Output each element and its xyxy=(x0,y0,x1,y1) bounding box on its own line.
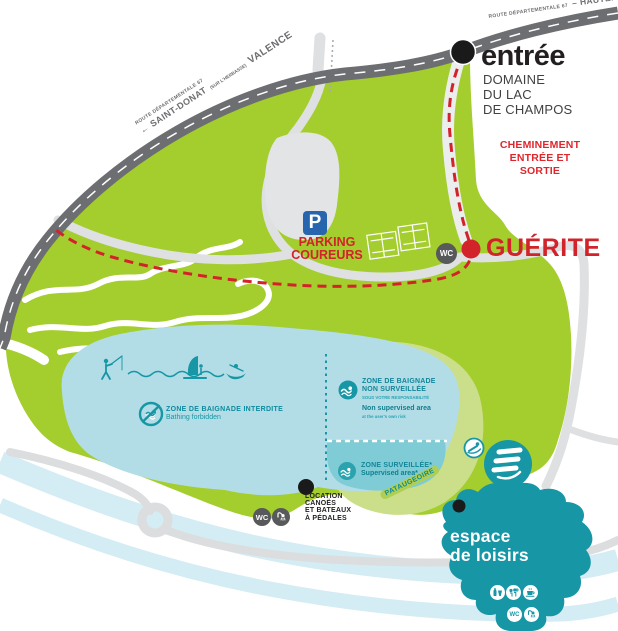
unsupervised-line-1: ZONE DE BAIGNADE xyxy=(362,378,436,386)
wc-icon: WC xyxy=(436,243,457,264)
rental-line-2: CANOËS xyxy=(305,500,351,507)
unsupervised-line-4: Non supervised area xyxy=(362,405,436,413)
forbidden-zone-subtitle: Bathing forbidden xyxy=(166,414,221,421)
no-swimming-icon xyxy=(140,403,162,425)
leisure-dot xyxy=(453,500,466,513)
slide-person-icon xyxy=(465,439,484,458)
entrance-line-1: DOMAINE xyxy=(483,72,572,87)
steps-marks xyxy=(12,423,38,452)
playground-glyph xyxy=(508,587,519,598)
shower-icon xyxy=(524,607,539,622)
swimmer-icon-unsupervised xyxy=(339,381,358,400)
drinks-icon xyxy=(490,585,505,600)
shower-glyph xyxy=(526,609,537,620)
wc-icon: WC xyxy=(253,508,271,526)
parking-label: PARKING COUREURS xyxy=(291,236,363,262)
entrance-subtitle: DOMAINE DU LAC DE CHAMPOS xyxy=(483,72,572,117)
shower-glyph xyxy=(275,511,287,523)
leisure-line-2: de loisirs xyxy=(450,546,529,565)
rental-line-4: À PÉDALES xyxy=(305,515,351,522)
entrance-line-3: DE CHAMPOS xyxy=(483,102,572,117)
route-note-line-2: ENTRÉE ET xyxy=(494,152,586,165)
cafe-icon xyxy=(523,585,538,600)
parking-icon: P xyxy=(303,211,327,235)
lake-park-map: ROUTE DÉPARTEMENTALE 67 – HAUTERIVES ROU… xyxy=(0,0,618,631)
rental-label: LOCATION CANOËS ET BATEAUX À PÉDALES xyxy=(305,493,351,522)
route-note-line-3: SORTIE xyxy=(494,165,586,178)
parking-label-line-2: COUREURS xyxy=(291,249,363,262)
unsupervised-line-5: at the user's own risk xyxy=(362,413,436,421)
cafe-glyph xyxy=(525,587,536,598)
playground-icon xyxy=(506,585,521,600)
unsupervised-line-3: SOUS VOTRE RESPONSABILITÉ xyxy=(362,394,436,402)
shower-icon xyxy=(272,508,290,526)
unsupervised-line-2: NON SURVEILLÉE xyxy=(362,386,436,394)
guerite-dot xyxy=(462,240,481,259)
route-note: CHEMINEMENT ENTRÉE ET SORTIE xyxy=(494,139,586,178)
guerite-label: GUÉRITE xyxy=(486,234,601,263)
leisure-line-1: espace xyxy=(450,527,529,546)
rental-line-3: ET BATEAUX xyxy=(305,507,351,514)
entrance-dot xyxy=(451,40,476,65)
waterslide-icon xyxy=(484,440,532,488)
forbidden-zone-title: ZONE DE BAIGNADE INTERDITE xyxy=(166,406,283,413)
route-note-line-1: CHEMINEMENT xyxy=(494,139,586,152)
wc-icon: WC xyxy=(507,607,522,622)
drinks-glyph xyxy=(492,587,503,598)
entrance-title: entrée xyxy=(481,40,565,73)
entrance-line-2: DU LAC xyxy=(483,87,572,102)
swimmer-icon-supervised xyxy=(338,462,356,480)
unsupervised-zone-label: ZONE DE BAIGNADE NON SURVEILLÉE SOUS VOT… xyxy=(362,378,436,421)
supervised-line-1: ZONE SURVEILLÉE* xyxy=(361,462,432,470)
leisure-title: espace de loisirs xyxy=(450,527,529,565)
